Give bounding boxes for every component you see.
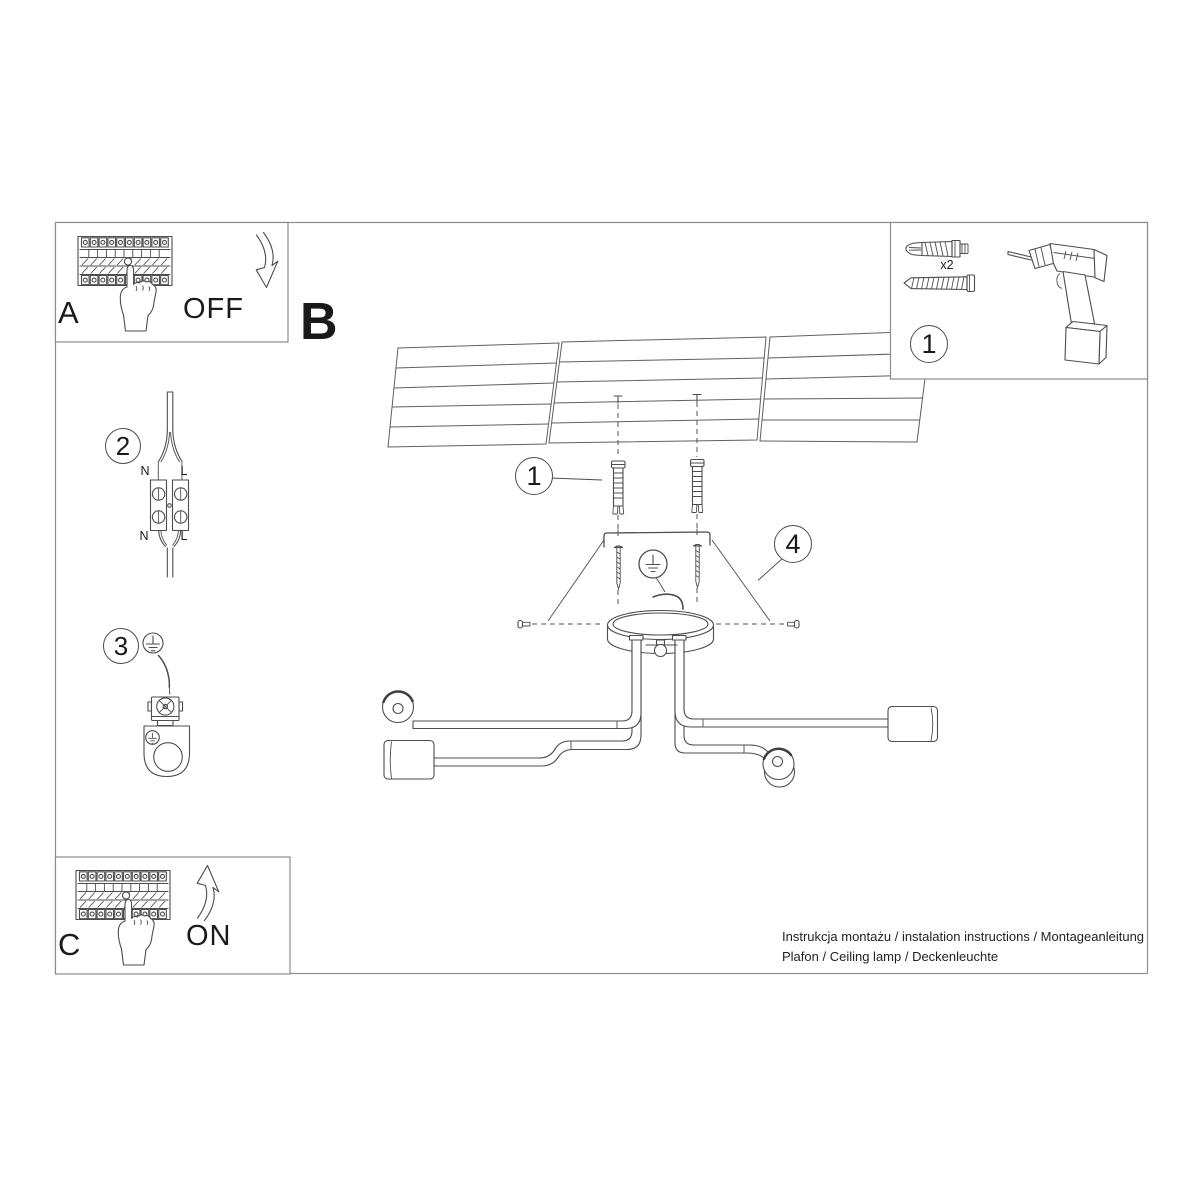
step-a-label: A <box>58 295 79 331</box>
parts-box-number: 1 <box>910 325 948 363</box>
terminal-l-bottom: L <box>176 529 192 543</box>
callout-1-badge: 1 <box>515 457 553 495</box>
lamp-socket-left <box>384 741 434 780</box>
step-a-box <box>56 223 289 343</box>
lamp-socket-right <box>888 707 938 742</box>
anchor-quantity-label: x2 <box>930 258 964 272</box>
step-b-label: B <box>300 292 338 352</box>
ceiling-panels <box>388 331 931 447</box>
terminal-n-bottom: N <box>136 529 152 543</box>
callout-4-badge: 4 <box>774 525 812 563</box>
lamp-holder-left <box>383 691 414 722</box>
terminal-l-top: L <box>176 464 192 478</box>
diagram-canvas <box>0 0 1200 1200</box>
step-3-number: 3 <box>103 628 139 664</box>
step-c-label: C <box>58 927 80 963</box>
footer-line-1: Instrukcja montażu / instalation instruc… <box>782 929 1144 944</box>
instruction-sheet: A OFF B C ON 1 x2 2 3 1 4 N L N L Instru… <box>0 0 1200 1200</box>
terminal-n-top: N <box>137 464 153 478</box>
switch-on-label: ON <box>186 920 232 953</box>
step-c-box <box>56 857 291 974</box>
step-2-number: 2 <box>105 428 141 464</box>
switch-off-label: OFF <box>183 293 244 326</box>
footer-line-2: Plafon / Ceiling lamp / Deckenleuchte <box>782 949 998 964</box>
